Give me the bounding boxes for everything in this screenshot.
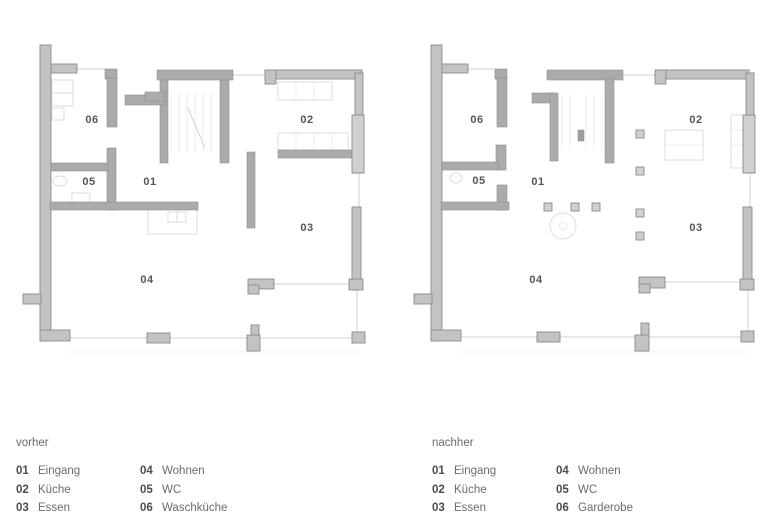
legend-item-number: 01 — [432, 465, 454, 477]
legend-after-items: 01 Eingang 02 Küche 03 Essen 04 Wohnen 0… — [432, 462, 680, 518]
legend-after: nachher 01 Eingang 02 Küche 03 Essen 04 … — [432, 437, 680, 518]
legend-item: 05 WC — [140, 481, 264, 500]
walls-layer — [414, 45, 755, 351]
legend-item: 02 Küche — [432, 481, 556, 500]
legend-item: 05 WC — [556, 481, 680, 500]
legend-item-number: 02 — [16, 484, 38, 496]
legend-item-label: Küche — [454, 484, 487, 496]
stair-treads — [171, 92, 211, 152]
stair-treads — [562, 95, 602, 150]
legend-item-number: 02 — [432, 484, 454, 496]
room-label-wohnen: 04 — [529, 274, 542, 286]
legend-item: 01 Eingang — [432, 462, 556, 481]
legend-item: 04 Wohnen — [140, 462, 264, 481]
legend-item: 04 Wohnen — [556, 462, 680, 481]
legend-item-number: 04 — [556, 465, 578, 477]
legend-item: 02 Küche — [16, 481, 140, 500]
room-label-kueche: 02 — [689, 114, 702, 126]
floor-plan-comparison: 01 02 03 04 05 06 — [0, 0, 780, 528]
legend-item: 03 Essen — [432, 499, 556, 518]
legend-item-label: Waschküche — [162, 502, 227, 514]
legend-item-label: Essen — [454, 502, 486, 514]
legend-item-number: 03 — [432, 502, 454, 514]
legend-item: 06 Waschküche — [140, 499, 264, 518]
room-label-essen: 03 — [689, 222, 702, 234]
legend-item-label: WC — [162, 484, 181, 496]
legend-item-label: Wohnen — [578, 465, 621, 477]
room-label-wc: 05 — [82, 176, 95, 188]
legend-item-label: WC — [578, 484, 597, 496]
legend-item: 06 Garderobe — [556, 499, 680, 518]
legend-item-label: Eingang — [38, 465, 80, 477]
legend-before-items: 01 Eingang 02 Küche 03 Essen 04 Wohnen 0… — [16, 462, 264, 518]
legend-item: 03 Essen — [16, 499, 140, 518]
room-label-wc: 05 — [472, 175, 485, 187]
legend-item-label: Garderobe — [578, 502, 633, 514]
legend-item: 01 Eingang — [16, 462, 140, 481]
legend-item-number: 01 — [16, 465, 38, 477]
legend-item-number: 04 — [140, 465, 162, 477]
floor-plan-after-graphic — [399, 8, 771, 368]
legend-item-label: Küche — [38, 484, 71, 496]
legend-item-number: 03 — [16, 502, 38, 514]
room-label-essen: 03 — [300, 222, 313, 234]
room-label-kueche: 02 — [300, 114, 313, 126]
legend-item-number: 05 — [140, 484, 162, 496]
room-label-waschkueche: 06 — [85, 114, 98, 126]
fixtures-layer — [450, 115, 744, 239]
legend-before-title: vorher — [16, 437, 264, 449]
legend-item-number: 06 — [140, 502, 162, 514]
legend-item-label: Wohnen — [162, 465, 205, 477]
legend-item-number: 05 — [556, 484, 578, 496]
room-label-wohnen: 04 — [140, 274, 153, 286]
floor-plan-before-graphic — [8, 8, 380, 368]
room-label-eingang: 01 — [531, 176, 544, 188]
room-label-eingang: 01 — [143, 176, 156, 188]
legend-before: vorher 01 Eingang 02 Küche 03 Essen 04 W… — [16, 437, 264, 518]
legend-item-number: 06 — [556, 502, 578, 514]
floor-plan-before: 01 02 03 04 05 06 — [8, 8, 380, 368]
legend-after-title: nachher — [432, 437, 680, 449]
floor-plan-after: 01 02 03 04 05 06 — [399, 8, 771, 368]
legend-item-label: Eingang — [454, 465, 496, 477]
room-label-garderobe: 06 — [470, 114, 483, 126]
legend-item-label: Essen — [38, 502, 70, 514]
